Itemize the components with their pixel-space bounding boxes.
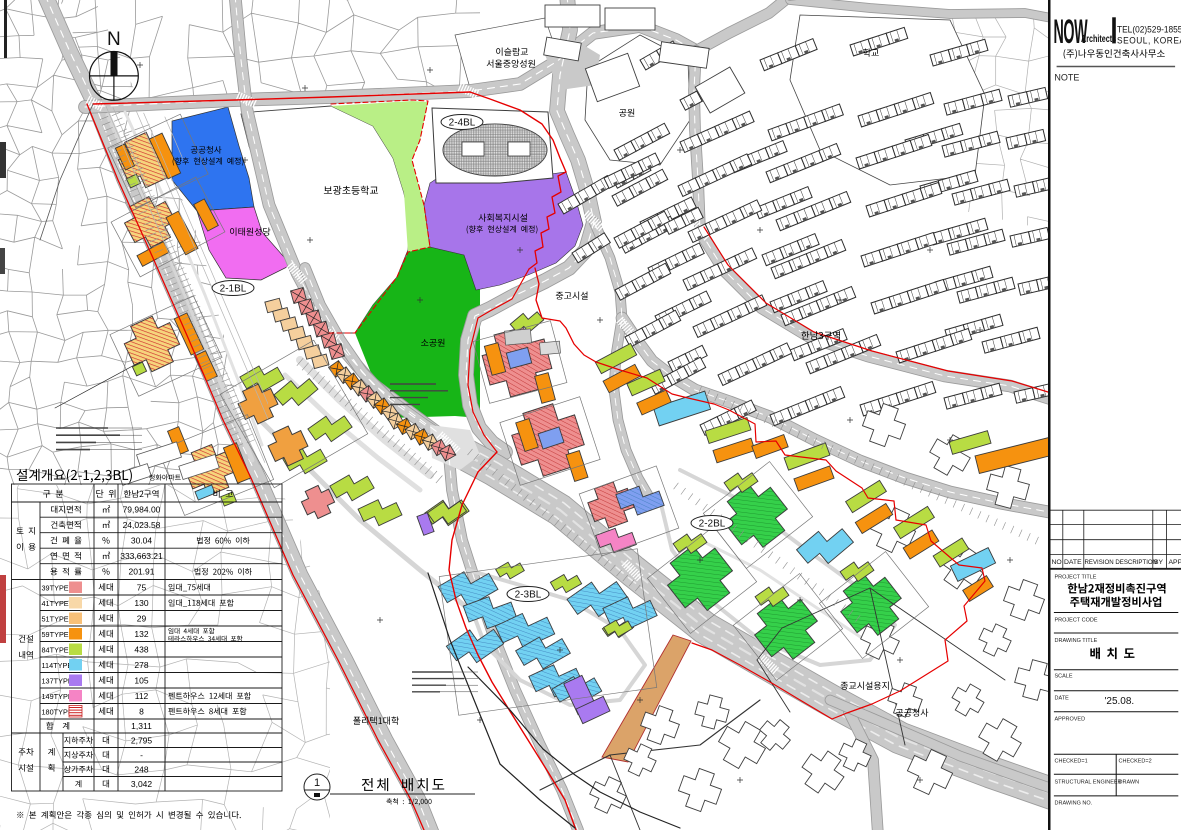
svg-text:1,311: 1,311: [131, 721, 152, 731]
svg-text:2-2BL: 2-2BL: [699, 519, 726, 530]
svg-text:8: 8: [139, 706, 144, 716]
svg-text:84TYPE: 84TYPE: [42, 645, 69, 654]
svg-text:75: 75: [137, 582, 147, 592]
svg-text:29: 29: [137, 613, 147, 623]
svg-text:DRAWING NO.: DRAWING NO.: [1055, 801, 1093, 807]
svg-text:SCALE: SCALE: [1055, 674, 1073, 680]
svg-text:30.04: 30.04: [131, 535, 153, 545]
svg-text:'25.08.: '25.08.: [1105, 696, 1135, 707]
svg-text:DATE: DATE: [1055, 696, 1070, 702]
svg-text:438: 438: [134, 644, 148, 654]
svg-text:41TYPE: 41TYPE: [42, 599, 69, 608]
svg-text:112: 112: [135, 691, 149, 701]
svg-text:NO: NO: [1052, 559, 1062, 566]
svg-text:CHECKED=1: CHECKED=1: [1055, 759, 1088, 765]
svg-text:Architects: Architects: [1081, 33, 1116, 44]
svg-text:CHECKED=2: CHECKED=2: [1119, 759, 1152, 765]
svg-text:3,042: 3,042: [131, 779, 153, 789]
svg-text:333,663.21: 333,663.21: [120, 551, 163, 561]
svg-text:248: 248: [134, 764, 148, 774]
svg-text:NOTE: NOTE: [1054, 73, 1079, 83]
svg-text:N: N: [107, 29, 121, 50]
svg-text:TEL(02)529-1855: TEL(02)529-1855: [1117, 24, 1181, 35]
svg-text:2,795: 2,795: [131, 735, 153, 745]
svg-text:PROJECT CODE: PROJECT CODE: [1055, 618, 1098, 624]
svg-text:2-1BL: 2-1BL: [220, 284, 247, 295]
svg-text:51TYPE: 51TYPE: [42, 614, 69, 623]
svg-text:NOW: NOW: [1054, 12, 1088, 51]
svg-text:APP: APP: [1169, 559, 1181, 566]
svg-text:132: 132: [134, 629, 148, 639]
svg-text:59TYPE: 59TYPE: [42, 630, 69, 639]
svg-text:278: 278: [134, 660, 148, 670]
svg-text:201.91: 201.91: [129, 567, 155, 577]
svg-text:130: 130: [134, 598, 148, 608]
svg-text:REVISION DESCRIPTION: REVISION DESCRIPTION: [1085, 559, 1158, 566]
svg-text:STRUCTURAL ENGINEER: STRUCTURAL ENGINEER: [1055, 780, 1122, 786]
svg-text:39TYPE: 39TYPE: [42, 583, 69, 592]
svg-text:180TYPE: 180TYPE: [42, 707, 73, 716]
svg-text:2-3BL: 2-3BL: [515, 590, 542, 601]
svg-text:SEOUL, KOREA: SEOUL, KOREA: [1117, 35, 1181, 46]
svg-text:79,984.00: 79,984.00: [123, 505, 161, 515]
svg-text:PROJECT TITLE: PROJECT TITLE: [1055, 575, 1097, 581]
svg-text:1: 1: [314, 777, 320, 789]
svg-text:DRAWING TITLE: DRAWING TITLE: [1055, 638, 1098, 644]
svg-text:DATE: DATE: [1064, 559, 1082, 566]
svg-text:BY: BY: [1154, 559, 1164, 566]
svg-text:DRAWN: DRAWN: [1119, 780, 1140, 786]
svg-text:105: 105: [134, 675, 148, 685]
svg-text:114TYPE: 114TYPE: [42, 661, 73, 670]
svg-text:2-4BL: 2-4BL: [449, 118, 476, 129]
svg-text:APPROVED: APPROVED: [1055, 717, 1086, 723]
svg-text:-: -: [140, 750, 143, 760]
svg-text:137TYPE: 137TYPE: [42, 676, 73, 685]
svg-text:24,023.58: 24,023.58: [123, 520, 161, 530]
svg-text:149TYPE: 149TYPE: [42, 692, 73, 701]
